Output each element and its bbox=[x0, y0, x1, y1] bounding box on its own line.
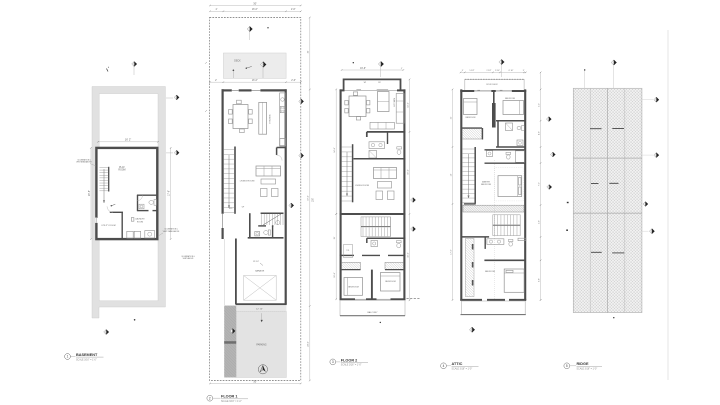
svg-text:LIVING ROOM: LIVING ROOM bbox=[355, 185, 369, 187]
svg-text:7'-2": 7'-2" bbox=[538, 182, 540, 186]
svg-text:24'-6": 24'-6" bbox=[308, 341, 310, 347]
svg-text:4'-6": 4'-6" bbox=[538, 131, 540, 135]
svg-text:DECK: DECK bbox=[234, 61, 241, 63]
svg-text:ROOF DECK: ROOF DECK bbox=[486, 84, 498, 86]
svg-text:2'-6": 2'-6" bbox=[291, 9, 296, 11]
svg-text:KITCHEN: KITCHEN bbox=[394, 98, 396, 107]
svg-text:BEDROOM: BEDROOM bbox=[485, 271, 495, 273]
svg-text:LAUNDRY: LAUNDRY bbox=[135, 218, 145, 221]
svg-text:72'-6": 72'-6" bbox=[308, 195, 310, 201]
svg-text:T.R.: T.R. bbox=[346, 250, 350, 252]
svg-text:LIVING ROOM: LIVING ROOM bbox=[240, 180, 255, 182]
svg-text:BEDROOM: BEDROOM bbox=[385, 281, 396, 283]
svg-text:W2: W2 bbox=[378, 82, 381, 84]
svg-text:PARKING: PARKING bbox=[256, 343, 266, 346]
svg-text:12'-10": 12'-10" bbox=[253, 261, 259, 263]
svg-text:VENT PANEL ABOVE: VENT PANEL ABOVE bbox=[163, 230, 180, 233]
svg-text:W1: W1 bbox=[364, 82, 367, 84]
svg-text:4: 4 bbox=[443, 364, 445, 368]
svg-text:16'-6": 16'-6" bbox=[252, 9, 258, 11]
svg-text:17'-6": 17'-6" bbox=[450, 249, 452, 254]
svg-text:RIDGE: RIDGE bbox=[577, 362, 589, 366]
svg-text:BEDROOM: BEDROOM bbox=[505, 98, 515, 100]
svg-text:34'-6": 34'-6" bbox=[407, 252, 409, 258]
svg-text:BEDROOM: BEDROOM bbox=[348, 287, 359, 289]
svg-text:5'-5": 5'-5" bbox=[538, 103, 540, 107]
svg-text:BALCONY: BALCONY bbox=[368, 311, 379, 314]
svg-text:BEDROOM: BEDROOM bbox=[466, 117, 476, 119]
svg-text:30': 30' bbox=[253, 1, 257, 5]
svg-text:14'-6": 14'-6" bbox=[334, 147, 336, 153]
svg-text:26'-8": 26'-8" bbox=[89, 190, 91, 196]
svg-text:ATTIC: ATTIC bbox=[452, 362, 463, 366]
svg-text:2'-6": 2'-6" bbox=[291, 80, 296, 82]
svg-text:BEDROOM: BEDROOM bbox=[481, 184, 491, 186]
svg-text:BASEMENT: BASEMENT bbox=[76, 353, 98, 357]
svg-text:SCALE 3/16" = 1'-0": SCALE 3/16" = 1'-0" bbox=[452, 368, 473, 371]
svg-text:3: 3 bbox=[332, 360, 334, 364]
svg-text:17'-6": 17'-6" bbox=[169, 190, 171, 196]
svg-text:UTILITY ROOM: UTILITY ROOM bbox=[101, 225, 116, 227]
svg-text:16' 2": 16' 2" bbox=[125, 138, 132, 142]
svg-text:5'-6": 5'-6" bbox=[538, 220, 540, 224]
svg-text:SCALE 3/16" = 1'-0": SCALE 3/16" = 1'-0" bbox=[76, 358, 97, 361]
svg-text:SCALE 3/16" = 1'-0": SCALE 3/16" = 1'-0" bbox=[577, 368, 598, 371]
svg-text:GARAGE: GARAGE bbox=[255, 270, 265, 273]
svg-text:KITCHEN: KITCHEN bbox=[270, 114, 272, 123]
svg-text:VENT ABOVE: VENT ABOVE bbox=[183, 257, 195, 260]
svg-text:SCALE 3/16" = 1'-0": SCALE 3/16" = 1'-0" bbox=[221, 400, 242, 403]
svg-text:ROOM: ROOM bbox=[137, 221, 144, 223]
svg-text:19'-6": 19'-6" bbox=[407, 169, 409, 175]
svg-text:SCALE 3/16" = 1'-0": SCALE 3/16" = 1'-0" bbox=[341, 364, 362, 367]
svg-text:6'-8": 6'-8" bbox=[538, 278, 540, 282]
svg-text:5 1/2": 5 1/2" bbox=[470, 70, 475, 72]
svg-text:16'-6": 16'-6" bbox=[252, 80, 258, 82]
svg-text:ROOM: ROOM bbox=[118, 170, 125, 172]
svg-text:VENT AREA ABOVE: VENT AREA ABOVE bbox=[76, 161, 92, 164]
svg-text:12'-6": 12'-6" bbox=[334, 272, 336, 278]
svg-text:2'-10": 2'-10" bbox=[495, 70, 500, 72]
svg-text:FLOOR 2: FLOOR 2 bbox=[341, 358, 357, 362]
svg-text:FLOOR 1: FLOOR 1 bbox=[221, 395, 237, 399]
svg-text:16'-6": 16'-6" bbox=[360, 68, 366, 70]
svg-text:2 1/2": 2 1/2" bbox=[487, 70, 492, 72]
svg-text:1: 1 bbox=[67, 355, 69, 359]
svg-text:100': 100' bbox=[313, 197, 315, 202]
svg-text:12' 10": 12' 10" bbox=[256, 309, 263, 311]
svg-text:2: 2 bbox=[209, 396, 211, 400]
svg-text:30': 30' bbox=[253, 379, 257, 383]
svg-text:5: 5 bbox=[566, 364, 568, 368]
svg-text:6' 10": 6' 10" bbox=[509, 70, 514, 72]
svg-text:PLAY: PLAY bbox=[119, 166, 125, 169]
svg-text:14'-6": 14'-6" bbox=[407, 102, 409, 108]
